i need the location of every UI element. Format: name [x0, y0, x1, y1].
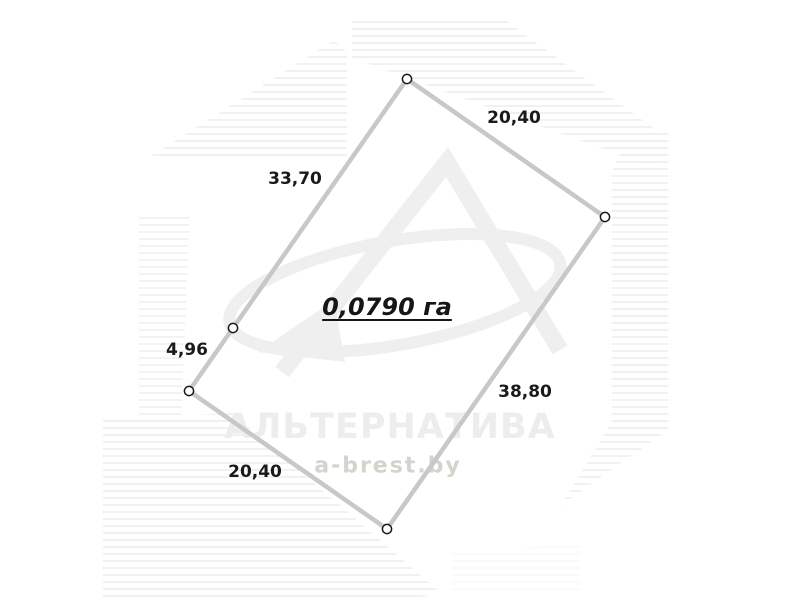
- vertex-marker: [184, 386, 193, 395]
- vertex-marker: [228, 323, 237, 332]
- side-length-label: 38,80: [498, 382, 552, 402]
- side-length-label: 20,40: [228, 462, 282, 482]
- vertex-marker: [600, 212, 609, 221]
- vertex-marker: [402, 74, 411, 83]
- side-length-label: 33,70: [268, 169, 322, 189]
- survey-plan-canvas: АЛЬТЕРНАТИВА a-brest.by 20,4038,8020,404…: [0, 0, 800, 599]
- vertex-marker: [382, 524, 391, 533]
- side-length-label: 20,40: [487, 108, 541, 128]
- side-length-label: 4,96: [166, 340, 208, 360]
- area-label: 0,0790 га: [322, 293, 452, 321]
